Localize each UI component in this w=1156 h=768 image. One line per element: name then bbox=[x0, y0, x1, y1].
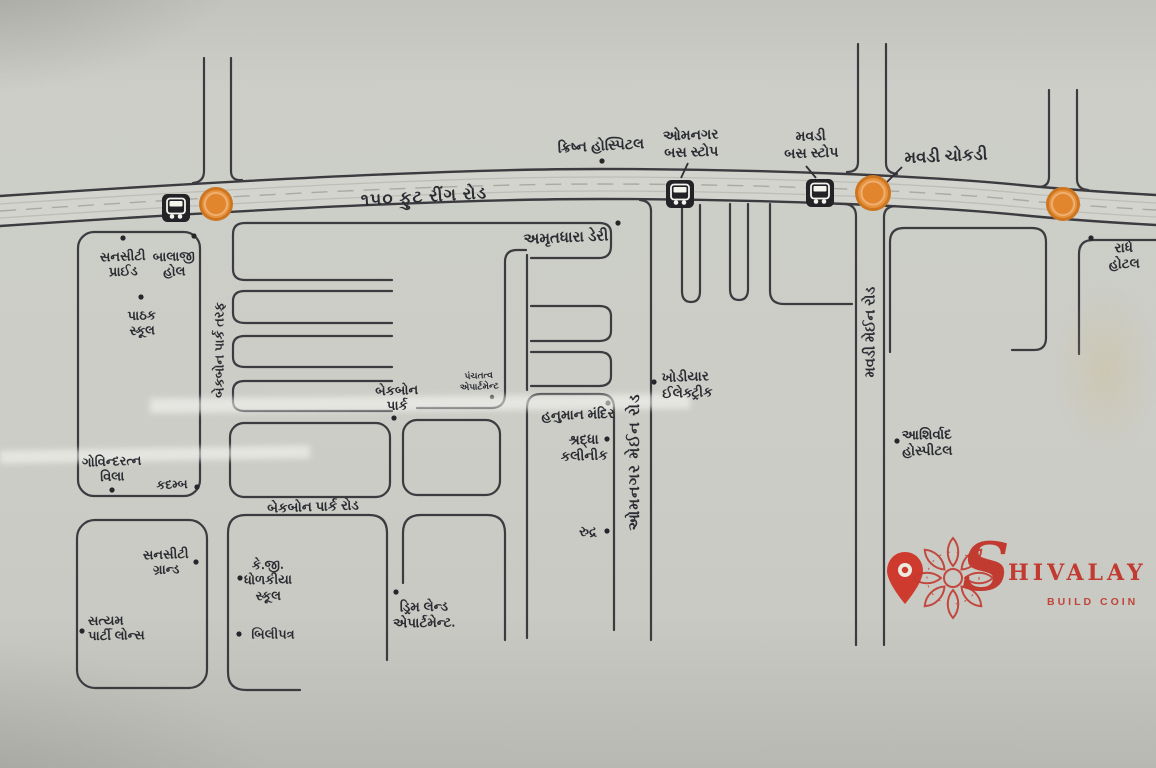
place-label-kg-dholakiya-school: કે.જી. ધોળકીયા સ્કૂલ bbox=[244, 557, 293, 604]
bus-stop-icon bbox=[806, 179, 834, 207]
place-label-hanuman-mandir: હનુમાન મંદિર bbox=[541, 406, 615, 424]
location-pin-icon bbox=[887, 552, 923, 604]
junction-circle bbox=[1048, 189, 1079, 220]
street-network bbox=[193, 44, 1088, 645]
road-label-mavdi-main-road: મવડી મેઈન રોડ bbox=[862, 287, 879, 378]
bus-stop-label-mavdi: મવડી બસ સ્ટોપ bbox=[783, 127, 838, 162]
place-label-pathak-school: પાઠક સ્કૂલ bbox=[127, 307, 156, 339]
road-label-omnagar-main-road: ઓમનગર મેઈન રોડ bbox=[626, 393, 644, 530]
logo-brand-name: HIVALAY bbox=[1008, 560, 1147, 586]
place-label-dream-land-apartment: ડ્રિમ લેન્ડ એપાર્ટમેન્ટ. bbox=[393, 599, 456, 632]
logo-tagline: BUILD COIN bbox=[1047, 596, 1138, 608]
place-label-rudra: રુદ્ર bbox=[579, 524, 597, 540]
place-label-balaji-hall: બાલાજી હોલ bbox=[152, 248, 195, 280]
place-label-kadamb: કદમ્બ bbox=[156, 477, 188, 493]
junction-circle bbox=[857, 177, 890, 210]
place-label-khodiyar-electric: ખોડીયાર ઈલેક્ટ્રીક bbox=[661, 368, 712, 402]
place-label-amrutdhara-dairy: અમૃતધારા ડેરી bbox=[523, 227, 609, 248]
map-drawing bbox=[0, 0, 1156, 768]
road-label-backbone-park-taraf: બેકબોન પાર્ક તરફ bbox=[211, 302, 226, 398]
location-map: ૧૫૦ ફુટ રીંગ રોડ મવડી ચોકડી બેકબોન પાર્ક… bbox=[0, 0, 1156, 768]
road-label-backbone-park-road: બેકબોન પાર્ક રોડ bbox=[267, 497, 359, 516]
city-blocks bbox=[77, 228, 1156, 690]
junction-label-mavdi-chokdi: મવડી ચોકડી bbox=[904, 145, 988, 168]
bus-stop-icon bbox=[666, 180, 694, 208]
bus-stop-icon bbox=[162, 194, 190, 222]
place-label-shraddha-clinic: શ્રદ્ધા કલીનીક bbox=[560, 431, 608, 464]
place-label-suncity-pride: સનસીટી પ્રાઈડ bbox=[100, 248, 147, 280]
place-label-satyam-party-lawns: સત્યમ પાર્ટી લોન્સ bbox=[88, 612, 145, 644]
logo-brand-initial: S bbox=[962, 528, 1010, 606]
bus-stop-label-omnagar: ઓમનગર બસ સ્ટોપ bbox=[663, 126, 720, 161]
place-label-govindratna-villa: ગોવિન્દરત્ન વિલા bbox=[82, 453, 142, 486]
place-label-ashirwad-hospital: આશિર્વાદ હોસ્પીટલ bbox=[902, 427, 953, 460]
place-label-bilipatra: બિલીપત્ર bbox=[251, 626, 294, 641]
place-label-panchtatva-apartment: પંચતત્વ એપાર્ટમેન્ટ bbox=[459, 369, 499, 392]
place-label-radhe-hotel: રાધે હોટલ bbox=[1107, 240, 1140, 273]
place-label-suncity-grand: સનસીટી ગ્રાન્ડ bbox=[143, 546, 190, 578]
junction-circle bbox=[201, 189, 232, 220]
place-label-backbone-park: બેકબોન પાર્ક bbox=[375, 382, 419, 414]
